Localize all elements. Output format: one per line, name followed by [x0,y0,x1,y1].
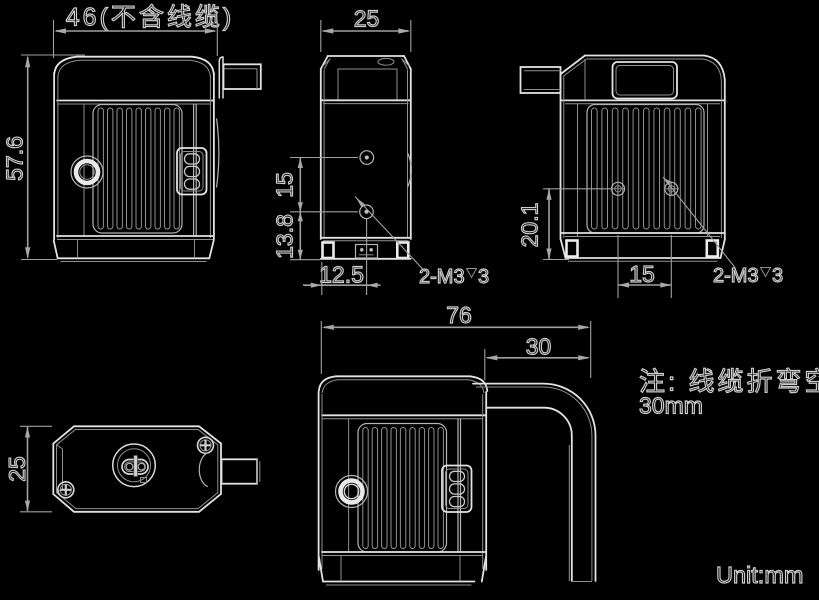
svg-text:25: 25 [354,6,380,32]
svg-text:2-M3: 2-M3 [419,266,465,288]
svg-text:76: 76 [446,302,472,328]
svg-text:2-M3: 2-M3 [713,265,759,287]
svg-text:57.6: 57.6 [2,136,28,181]
svg-text:3: 3 [772,265,783,287]
svg-text:46(不含线缆): 46(不含线缆) [66,4,234,32]
svg-text:3: 3 [478,266,489,288]
svg-text:Unit:mm: Unit:mm [716,562,803,588]
svg-text:25: 25 [4,456,30,482]
svg-text:13.8: 13.8 [272,214,298,259]
svg-text:15: 15 [272,172,298,198]
svg-text:12.5: 12.5 [319,262,364,288]
svg-text:30mm: 30mm [639,393,703,419]
svg-text:20.1: 20.1 [517,203,543,248]
svg-text:30: 30 [526,334,552,360]
svg-text:15: 15 [629,261,655,287]
